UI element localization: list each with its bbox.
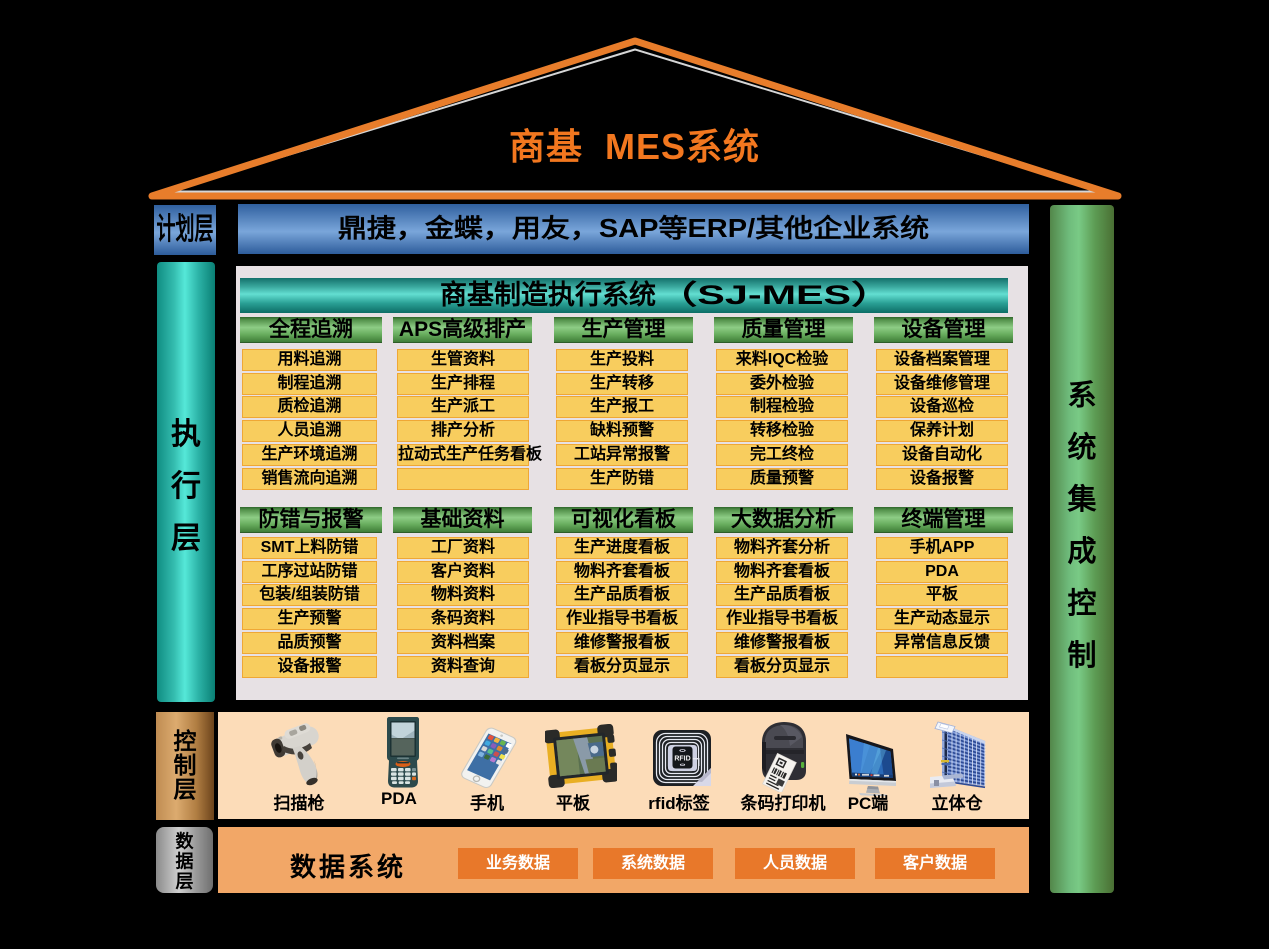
svg-text:RFID: RFID — [674, 756, 690, 763]
